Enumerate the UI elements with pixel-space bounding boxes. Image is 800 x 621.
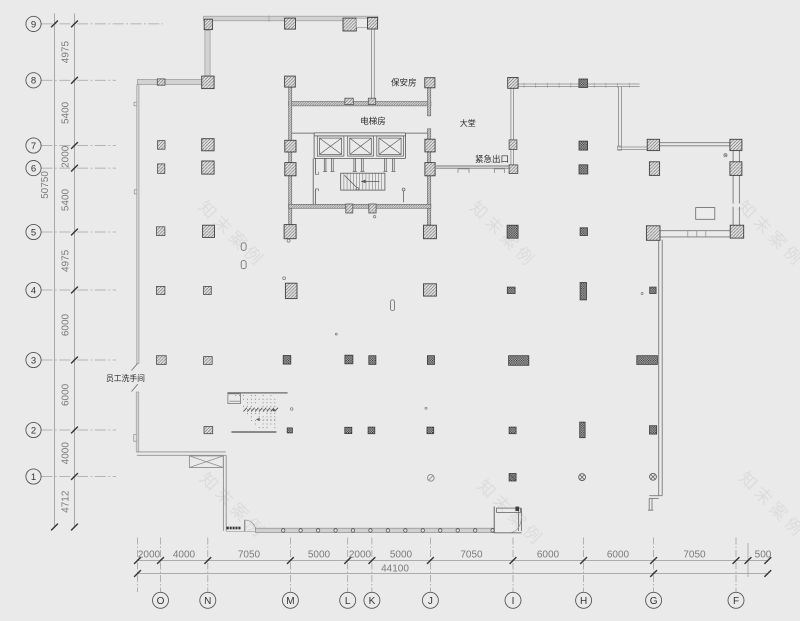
svg-text:50750: 50750 bbox=[40, 171, 51, 199]
svg-text:L: L bbox=[345, 596, 351, 607]
svg-text:I: I bbox=[512, 596, 515, 607]
svg-text:8: 8 bbox=[31, 76, 36, 87]
svg-text:M: M bbox=[286, 596, 294, 607]
svg-text:大堂: 大堂 bbox=[460, 118, 476, 128]
svg-text:电梯房: 电梯房 bbox=[360, 116, 386, 126]
svg-text:2: 2 bbox=[31, 425, 36, 436]
svg-text:保安房: 保安房 bbox=[391, 78, 417, 88]
svg-text:7050: 7050 bbox=[460, 549, 483, 560]
svg-text:5400: 5400 bbox=[61, 188, 72, 211]
svg-text:N: N bbox=[204, 596, 211, 607]
svg-text:6000: 6000 bbox=[537, 549, 560, 560]
svg-text:G: G bbox=[650, 596, 658, 607]
svg-text:4975: 4975 bbox=[61, 249, 72, 272]
svg-text:500: 500 bbox=[755, 549, 772, 560]
svg-text:4000: 4000 bbox=[173, 549, 196, 560]
svg-text:紧急出口: 紧急出口 bbox=[475, 154, 509, 164]
svg-text:7: 7 bbox=[31, 141, 36, 152]
svg-text:6000: 6000 bbox=[61, 383, 72, 406]
svg-text:1: 1 bbox=[31, 472, 36, 483]
svg-text:2000: 2000 bbox=[61, 145, 72, 168]
svg-text:员工洗手间: 员工洗手间 bbox=[106, 373, 145, 383]
svg-text:3: 3 bbox=[31, 355, 36, 366]
svg-text:5000: 5000 bbox=[390, 549, 413, 560]
svg-text:9: 9 bbox=[31, 19, 36, 30]
svg-text:2000: 2000 bbox=[349, 549, 372, 560]
svg-text:H: H bbox=[580, 596, 587, 607]
svg-text:2000: 2000 bbox=[138, 549, 161, 560]
svg-text:7050: 7050 bbox=[238, 549, 261, 560]
svg-text:4: 4 bbox=[31, 285, 36, 296]
svg-text:5: 5 bbox=[31, 227, 36, 238]
svg-text:J: J bbox=[428, 596, 433, 607]
svg-text:O: O bbox=[157, 596, 165, 607]
svg-text:7050: 7050 bbox=[683, 549, 706, 560]
svg-text:K: K bbox=[369, 596, 376, 607]
svg-text:6000: 6000 bbox=[61, 313, 72, 336]
svg-text:5400: 5400 bbox=[61, 101, 72, 124]
svg-text:5000: 5000 bbox=[308, 549, 331, 560]
svg-text:F: F bbox=[733, 596, 739, 607]
svg-text:6000: 6000 bbox=[607, 549, 630, 560]
svg-text:6: 6 bbox=[31, 164, 36, 175]
svg-text:4712: 4712 bbox=[61, 490, 72, 513]
svg-text:4975: 4975 bbox=[61, 41, 72, 64]
svg-text:4000: 4000 bbox=[61, 442, 72, 465]
svg-text:44100: 44100 bbox=[381, 563, 409, 574]
